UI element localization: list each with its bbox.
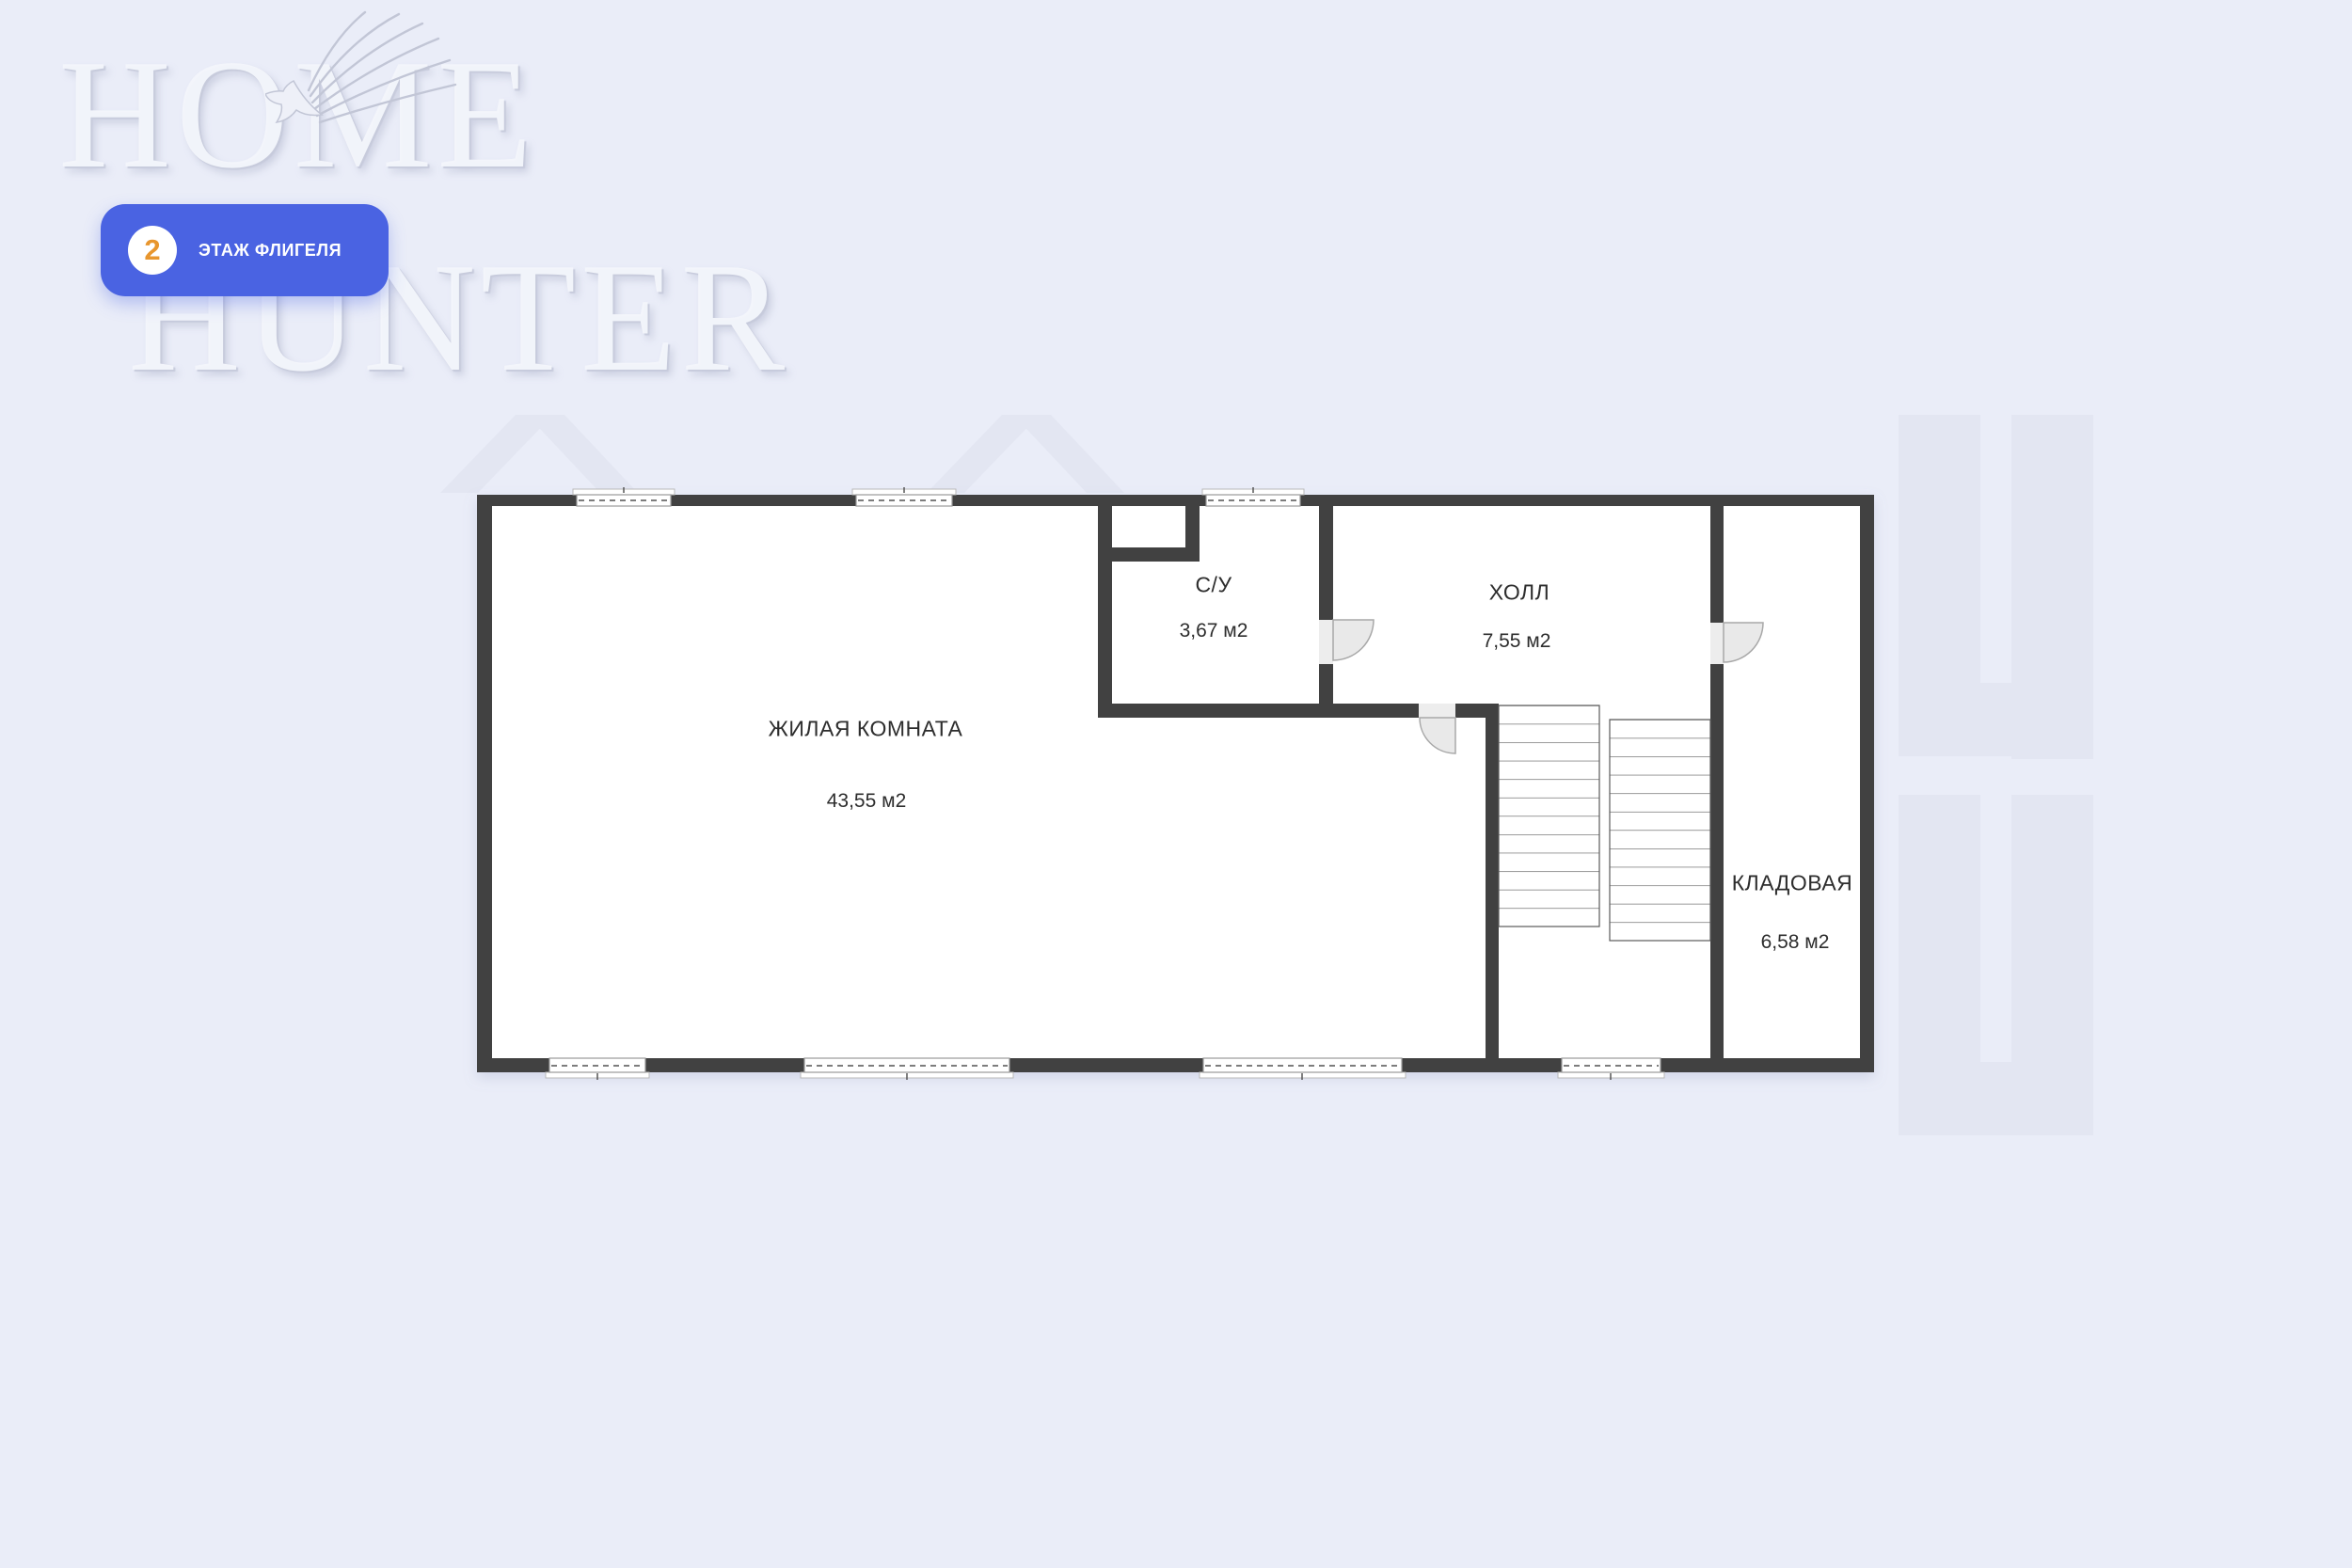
floor-number: 2 bbox=[144, 233, 160, 267]
room-name-hall: ХОЛЛ bbox=[1489, 580, 1549, 606]
room-name-bathroom: С/У bbox=[1195, 573, 1232, 598]
hall-door-threshold bbox=[1419, 704, 1455, 718]
floor-plan-page: HOME HUNTER 2 ЭТАЖ ФЛИГЕЛЯ bbox=[0, 0, 2352, 1568]
storage-door-threshold bbox=[1710, 623, 1724, 664]
floor-number-circle: 2 bbox=[128, 226, 177, 275]
floor-badge: 2 ЭТАЖ ФЛИГЕЛЯ bbox=[101, 204, 389, 296]
room-area-bathroom: 3,67 м2 bbox=[1180, 620, 1248, 642]
room-name-storage: КЛАДОВАЯ bbox=[1732, 871, 1853, 896]
bathroom-door-threshold bbox=[1319, 620, 1333, 664]
room-area-hall: 7,55 м2 bbox=[1483, 630, 1551, 653]
room-area-storage: 6,58 м2 bbox=[1761, 931, 1830, 954]
room-area-living: 43,55 м2 bbox=[827, 790, 907, 813]
floor-badge-label: ЭТАЖ ФЛИГЕЛЯ bbox=[199, 241, 377, 261]
room-name-living: ЖИЛАЯ КОМНАТА bbox=[769, 717, 963, 742]
